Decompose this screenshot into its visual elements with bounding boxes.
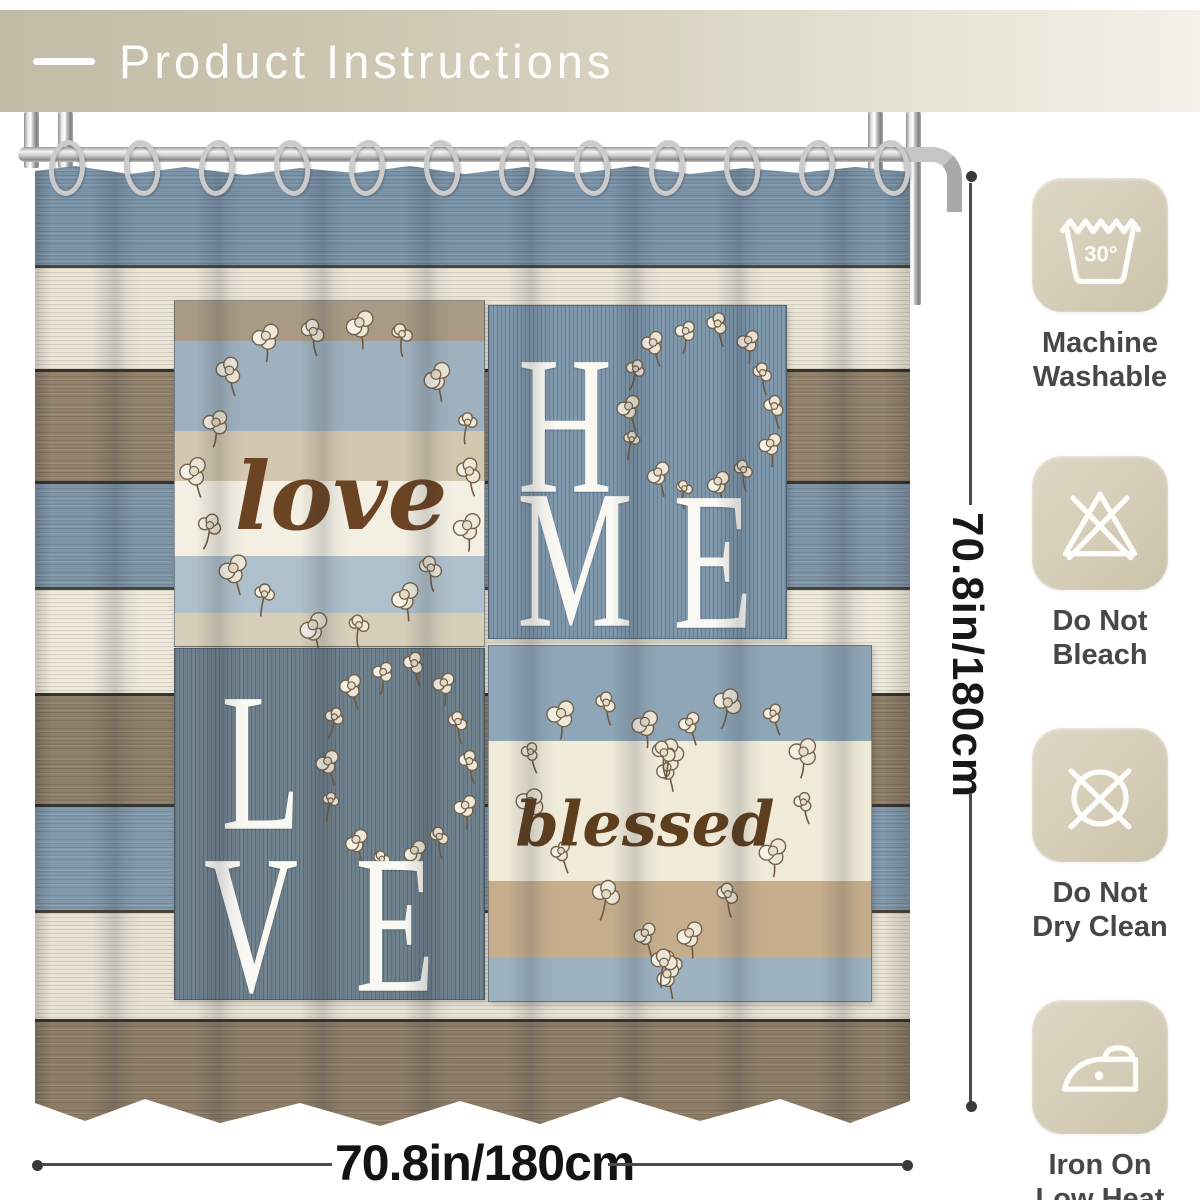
care-item-iron-low-heat: Iron On Low Heat bbox=[1032, 1000, 1168, 1200]
width-dimension-label: 70.8in/180cm bbox=[335, 1134, 605, 1192]
header-dash-icon bbox=[33, 58, 95, 65]
panel-love-vertical: L V E bbox=[174, 648, 485, 1000]
blessed-script-text: blessed bbox=[516, 788, 775, 861]
dimension-line bbox=[969, 183, 972, 505]
panel-home: H M E bbox=[488, 305, 787, 639]
do-not-dry-clean-icon bbox=[1032, 728, 1168, 862]
care-label: Iron On Low Heat bbox=[1032, 1148, 1168, 1200]
care-item-do-not-dry-clean: Do Not Dry Clean bbox=[1032, 728, 1168, 944]
dimension-line bbox=[608, 1163, 902, 1166]
machine-washable-icon: 30° bbox=[1032, 178, 1168, 312]
panel-love: love bbox=[174, 300, 485, 647]
height-dimension-label: 70.8in/180cm bbox=[942, 512, 992, 788]
product-instructions-page: Product Instructions love H M E bbox=[0, 0, 1200, 1200]
love-script-text: love bbox=[235, 442, 448, 552]
do-not-bleach-icon bbox=[1032, 456, 1168, 590]
iron-low-heat-icon bbox=[1032, 1000, 1168, 1134]
page-title: Product Instructions bbox=[119, 34, 614, 89]
care-item-machine-washable: 30° Machine Washable bbox=[1032, 178, 1168, 394]
dimension-endpoint-dot bbox=[902, 1160, 913, 1171]
panel-blessed: blessed bbox=[488, 645, 872, 1002]
letter-e: E bbox=[673, 483, 753, 641]
letter-m: M bbox=[517, 481, 633, 639]
care-item-do-not-bleach: Do Not Bleach bbox=[1032, 456, 1168, 672]
shower-curtain: love H M E L V E blessed bbox=[35, 163, 910, 1130]
care-label: Machine Washable bbox=[1032, 326, 1168, 394]
dimension-line bbox=[42, 1163, 332, 1166]
dimension-endpoint-dot bbox=[966, 1101, 977, 1112]
letter-e: E bbox=[355, 846, 435, 1004]
svg-text:30°: 30° bbox=[1084, 241, 1117, 266]
dimension-endpoint-dot bbox=[966, 171, 977, 182]
shower-rod-curved-end bbox=[903, 147, 962, 212]
wood-plank bbox=[35, 1019, 910, 1130]
letter-v: V bbox=[204, 846, 298, 1004]
dimension-line bbox=[969, 793, 972, 1103]
header-banner: Product Instructions bbox=[0, 10, 1200, 112]
care-label: Do Not Dry Clean bbox=[1032, 876, 1168, 944]
care-label: Do Not Bleach bbox=[1032, 604, 1168, 672]
wood-plank bbox=[35, 163, 910, 265]
